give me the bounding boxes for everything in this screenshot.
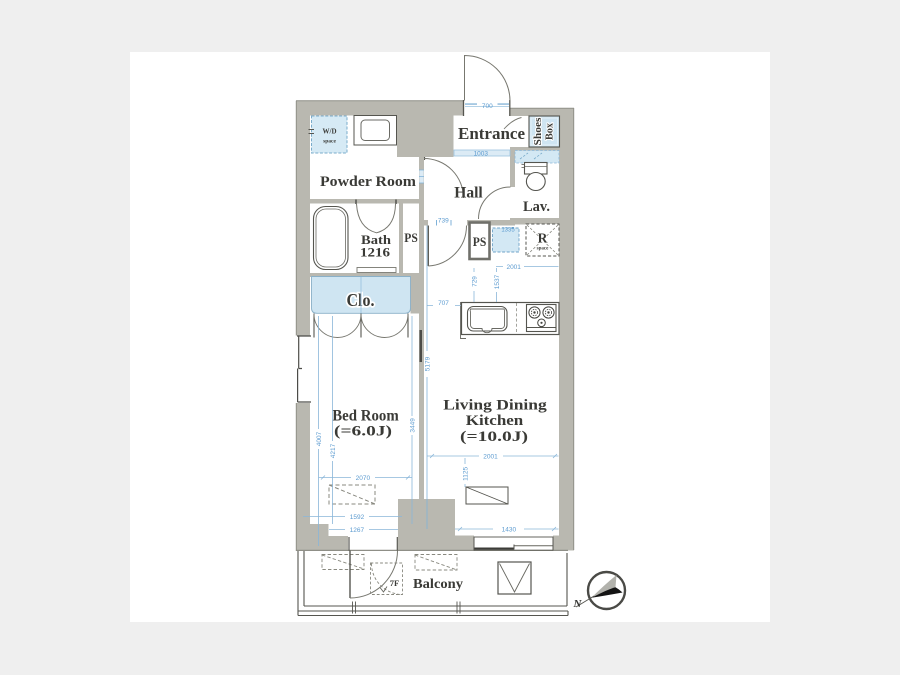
svg-text:3449: 3449 — [409, 418, 416, 433]
svg-text:space: space — [537, 247, 549, 252]
svg-text:1335: 1335 — [501, 228, 515, 234]
svg-text:(=10.0J): (=10.0J) — [460, 429, 528, 445]
svg-text:1267: 1267 — [350, 527, 365, 534]
svg-text:Lav.: Lav. — [523, 199, 550, 215]
svg-text:Bed Room: Bed Room — [332, 408, 399, 425]
svg-text:Kitchen: Kitchen — [466, 413, 524, 429]
svg-text:W/D: W/D — [323, 128, 337, 136]
svg-text:1537: 1537 — [494, 274, 501, 289]
svg-text:Balcony: Balcony — [413, 577, 463, 592]
svg-text:(=6.0J): (=6.0J) — [334, 424, 392, 440]
svg-text:707: 707 — [438, 300, 449, 307]
svg-text:2070: 2070 — [356, 475, 371, 482]
svg-text:7F: 7F — [390, 578, 399, 588]
svg-text:729: 729 — [471, 276, 478, 287]
svg-text:5179: 5179 — [425, 356, 432, 371]
svg-text:2001: 2001 — [483, 454, 498, 461]
svg-text:2001: 2001 — [506, 264, 521, 271]
svg-text:Entrance: Entrance — [458, 124, 525, 143]
svg-text:Shoes: Shoes — [532, 117, 544, 146]
svg-text:Powder Room: Powder Room — [320, 174, 417, 190]
svg-text:Box: Box — [544, 123, 556, 140]
svg-text:4217: 4217 — [330, 443, 337, 458]
svg-text:PS: PS — [473, 234, 487, 249]
svg-text:739: 739 — [438, 218, 449, 225]
svg-text:1125: 1125 — [462, 467, 469, 481]
svg-text:N: N — [573, 598, 583, 610]
svg-text:Hall: Hall — [454, 185, 483, 202]
svg-text:4007: 4007 — [316, 431, 323, 446]
svg-text:700: 700 — [482, 103, 493, 110]
svg-text:space: space — [323, 139, 336, 145]
svg-text:Clo.: Clo. — [347, 290, 375, 310]
svg-text:R: R — [538, 231, 548, 246]
svg-text:1430: 1430 — [502, 526, 517, 533]
svg-text:1003: 1003 — [474, 151, 489, 158]
svg-text:1216: 1216 — [360, 245, 391, 260]
svg-text:1592: 1592 — [350, 514, 365, 521]
svg-text:PS: PS — [404, 230, 418, 245]
svg-text:Living Dining: Living Dining — [443, 398, 547, 414]
